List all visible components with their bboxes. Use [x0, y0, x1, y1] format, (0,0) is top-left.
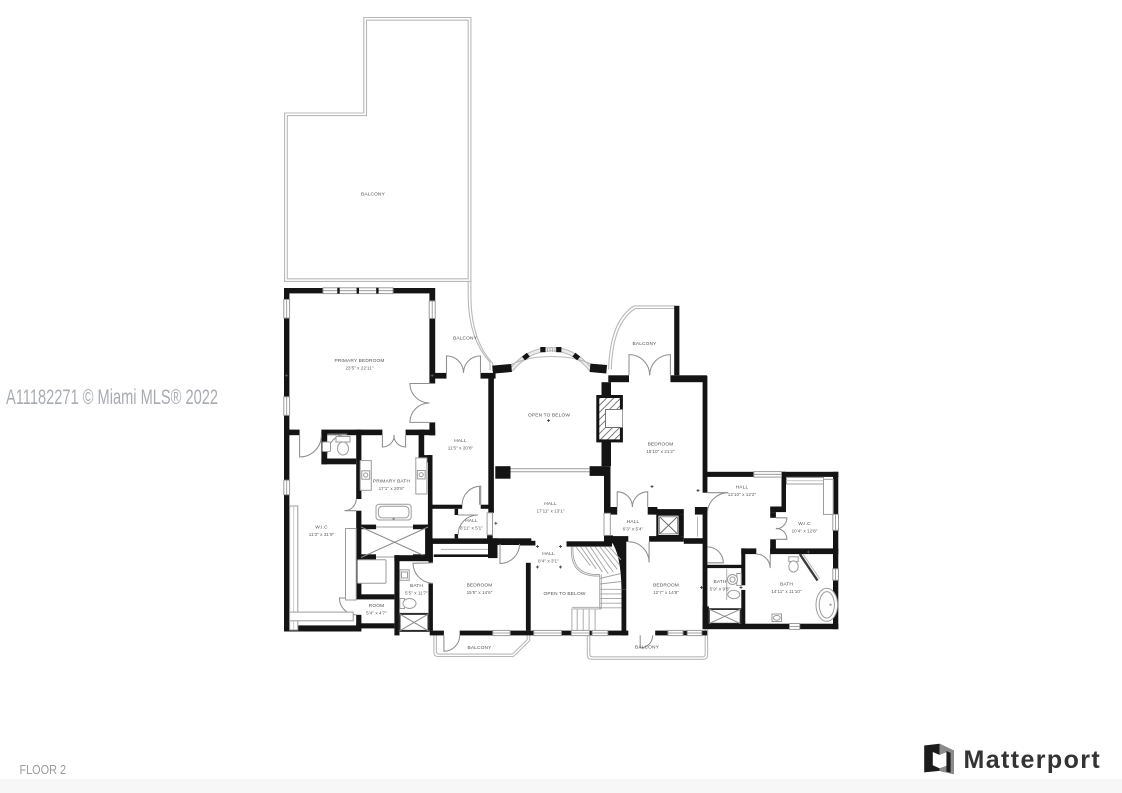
svg-text:HALL: HALL [627, 519, 640, 525]
svg-text:A11182271 © Miami MLS® 2022: A11182271 © Miami MLS® 2022 [6, 386, 218, 409]
svg-text:W.I.C: W.I.C [798, 521, 811, 527]
svg-text:8'4" x 3'1": 8'4" x 3'1" [538, 559, 559, 564]
svg-text:HALL: HALL [465, 518, 478, 524]
svg-text:11'3" x 31'9": 11'3" x 31'9" [309, 532, 335, 537]
svg-text:PRIMARY BATH: PRIMARY BATH [373, 479, 411, 485]
svg-text:17'1" x 20'8": 17'1" x 20'8" [379, 486, 405, 491]
svg-text:BALCONY: BALCONY [635, 645, 660, 651]
svg-text:10'4" x 12'8": 10'4" x 12'8" [792, 529, 818, 534]
svg-text:BEDROOM: BEDROOM [653, 583, 679, 589]
svg-text:17'11" x 13'1": 17'11" x 13'1" [536, 509, 564, 514]
svg-text:BEDROOM: BEDROOM [648, 442, 674, 448]
svg-text:HALL: HALL [542, 551, 555, 557]
svg-text:W.I.C: W.I.C [315, 525, 328, 531]
svg-text:14'11" x 11'10": 14'11" x 11'10" [771, 589, 802, 594]
svg-text:BATH: BATH [713, 579, 726, 585]
svg-text:8'11" x 5'1": 8'11" x 5'1" [460, 526, 483, 531]
svg-text:OPEN TO BELOW: OPEN TO BELOW [543, 591, 585, 597]
svg-text:12'7" x 14'8": 12'7" x 14'8" [653, 590, 679, 595]
svg-text:11'5" x 20'8": 11'5" x 20'8" [448, 446, 474, 451]
svg-text:BALCONY: BALCONY [361, 192, 386, 198]
svg-text:15'5" x 14'6": 15'5" x 14'6" [467, 590, 493, 595]
svg-text:OPEN TO BELOW: OPEN TO BELOW [528, 413, 570, 419]
svg-text:FLOOR 2: FLOOR 2 [20, 763, 67, 777]
svg-text:BALCONY: BALCONY [453, 336, 478, 342]
svg-text:ROOM: ROOM [369, 603, 385, 609]
svg-text:BALCONY: BALCONY [468, 645, 493, 651]
svg-text:HALL: HALL [736, 485, 749, 491]
svg-text:BEDROOM: BEDROOM [467, 583, 493, 589]
svg-text:HALL: HALL [454, 438, 467, 444]
svg-text:BATH: BATH [410, 583, 423, 589]
svg-text:5'4" x 4'7": 5'4" x 4'7" [366, 611, 387, 616]
svg-text:5'5" x 11'7": 5'5" x 11'7" [405, 591, 428, 596]
svg-text:BATH: BATH [780, 582, 793, 588]
svg-text:Matterport: Matterport [964, 746, 1102, 774]
svg-text:BALCONY: BALCONY [633, 341, 658, 347]
svg-text:23'5" x 22'11": 23'5" x 22'11" [345, 366, 373, 371]
svg-text:6'3" x 5'4": 6'3" x 5'4" [623, 527, 644, 532]
svg-text:15'10" x 21'2": 15'10" x 21'2" [646, 449, 675, 454]
svg-text:12'10" x 12'2": 12'10" x 12'2" [728, 492, 757, 497]
svg-text:PRIMARY BEDROOM: PRIMARY BEDROOM [334, 358, 384, 364]
svg-text:HALL: HALL [544, 501, 557, 507]
svg-text:5'9" x 9'8": 5'9" x 9'8" [710, 587, 731, 592]
